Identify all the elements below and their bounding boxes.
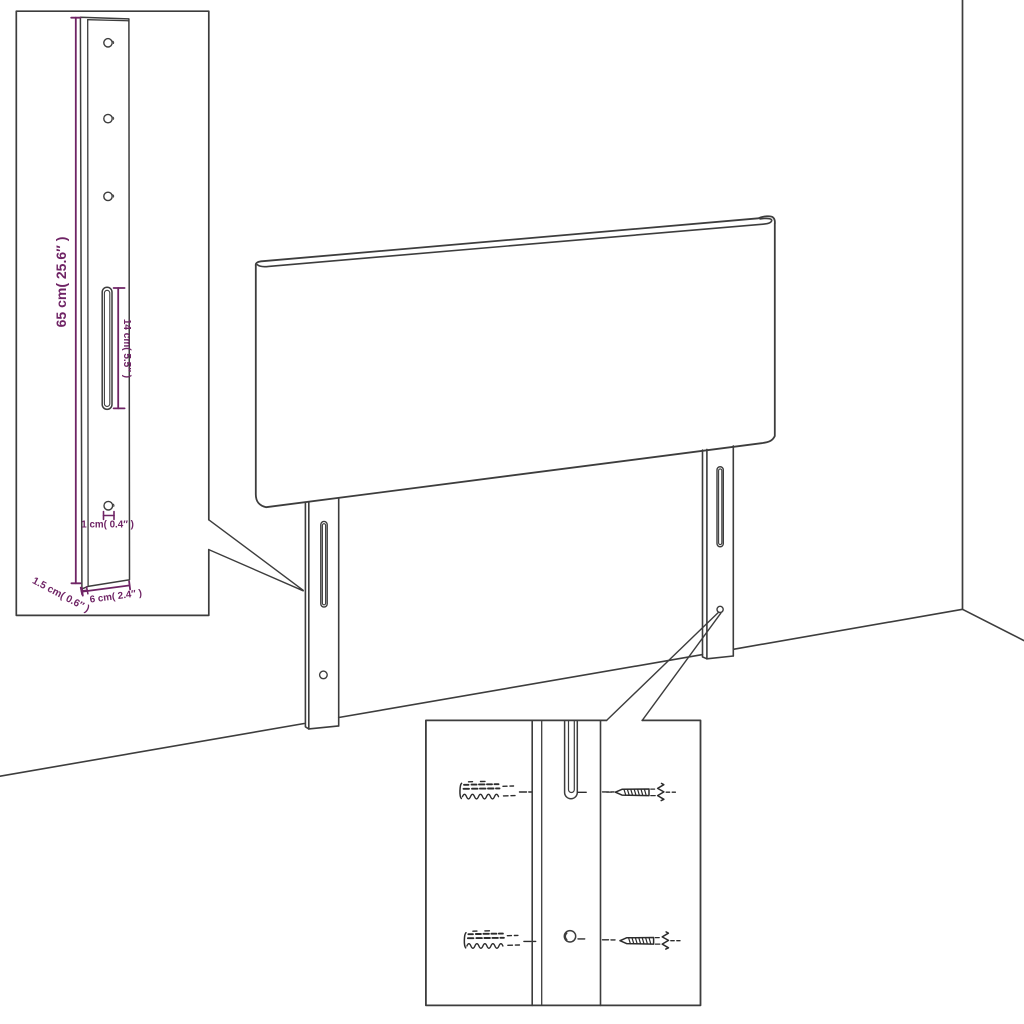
svg-text:65 cm( 25.6″ ): 65 cm( 25.6″ ) (53, 237, 69, 328)
svg-text:14 cm( 5.5″ ): 14 cm( 5.5″ ) (121, 319, 132, 378)
svg-text:1 cm( 0.4″ ): 1 cm( 0.4″ ) (81, 520, 134, 531)
